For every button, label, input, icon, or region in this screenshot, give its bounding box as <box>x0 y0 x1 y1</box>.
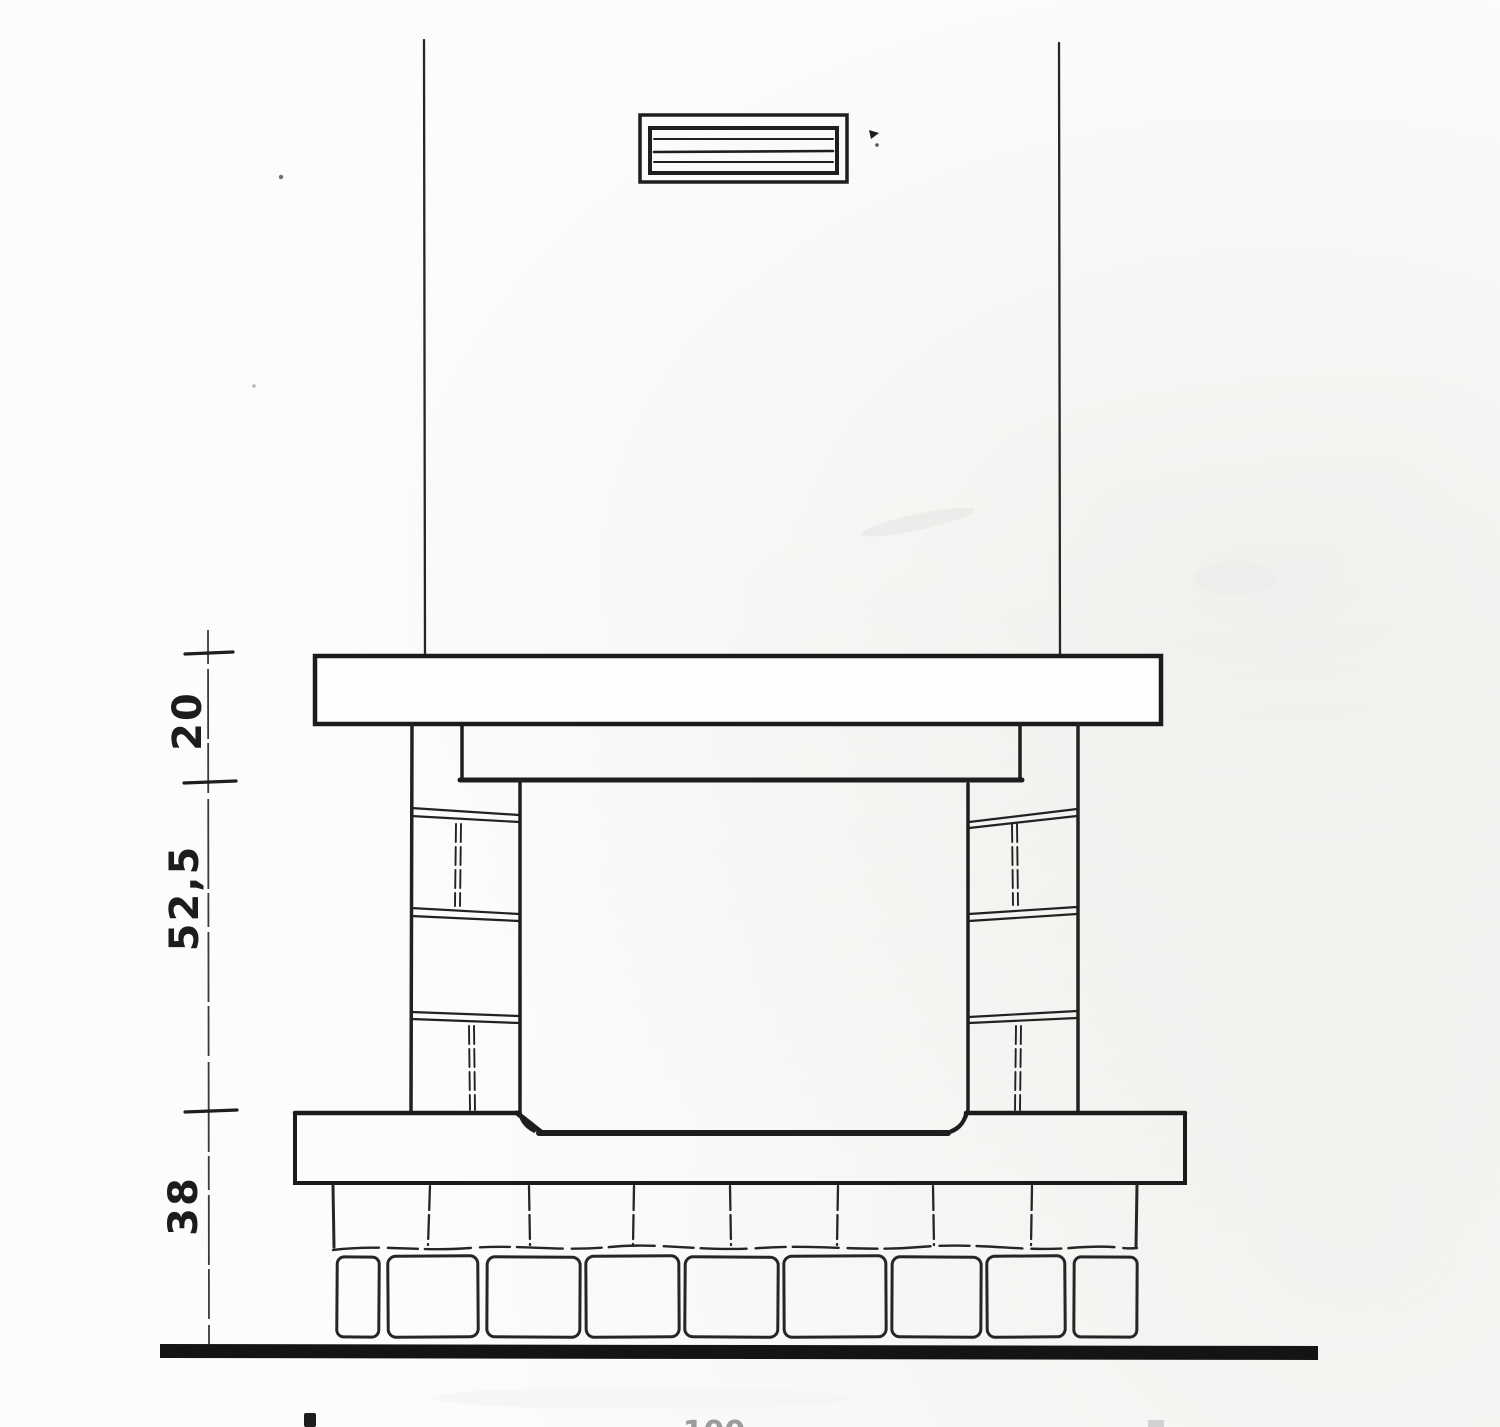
mortar-line <box>969 907 1077 914</box>
base-right-edge <box>1136 1185 1137 1247</box>
brick-joint <box>837 1186 838 1245</box>
brick-joint <box>730 1186 731 1245</box>
mortar-line <box>969 1011 1077 1017</box>
brick-joint <box>460 824 461 906</box>
brick <box>892 1257 981 1337</box>
ink-fleck <box>869 130 879 139</box>
firebox <box>517 783 968 1133</box>
dimension-tick <box>184 781 236 783</box>
vent-slat-line <box>654 151 833 152</box>
brick-joint <box>1020 1026 1021 1110</box>
mortar-line <box>411 1012 519 1016</box>
mortar-line <box>411 916 519 921</box>
base-upper-joints <box>428 1186 1032 1245</box>
brick-joint <box>933 1186 934 1245</box>
brick-joint <box>1015 1026 1016 1110</box>
dimension-line-group: 20 52,5 38 <box>161 630 237 1344</box>
right-column-mortar-joints <box>969 809 1077 1023</box>
mortar-line <box>969 816 1077 828</box>
ink-speck <box>875 143 879 147</box>
mortar-line <box>411 808 519 815</box>
chimney-left-line <box>424 40 425 655</box>
brick-joint <box>1017 824 1018 905</box>
brick <box>388 1256 479 1338</box>
mortar-line <box>969 809 1077 822</box>
base-lower-course <box>337 1256 1137 1338</box>
smudge <box>860 502 977 542</box>
paper-smudges <box>252 175 1460 1409</box>
left-column-head-joints <box>455 824 475 1110</box>
ink-fleck-near-vent <box>869 130 879 147</box>
dimension-label-38: 38 <box>161 1176 207 1236</box>
left-column-outer-edge <box>411 724 412 1112</box>
brick <box>987 1256 1066 1338</box>
lintel <box>460 724 1022 780</box>
brick-joint <box>428 1186 430 1245</box>
ground-line <box>160 1344 1318 1360</box>
mortar-line <box>969 1018 1077 1023</box>
bottom-cropped-labels: 100 <box>304 1413 1164 1427</box>
mantel-shelf <box>315 656 1161 724</box>
fireplace-elevation-drawing: 20 52,5 38 100 <box>0 0 1500 1427</box>
chimney-lines <box>424 40 1060 655</box>
dimension-tick <box>185 1110 237 1112</box>
cropped-mark-left <box>304 1413 316 1427</box>
brick-joint <box>1031 1186 1032 1245</box>
mortar-bed-line <box>333 1246 1137 1250</box>
ink-speck <box>252 384 256 388</box>
firebox-right-wall <box>951 784 968 1131</box>
mortar-line <box>969 914 1077 921</box>
brick <box>685 1257 779 1338</box>
mortar-line <box>411 1019 519 1023</box>
right-column-head-joints <box>1012 824 1021 1110</box>
cropped-mark-right <box>1148 1420 1164 1427</box>
ink-speck <box>279 175 283 179</box>
scanned-drawing-page: 20 52,5 38 100 <box>0 0 1500 1427</box>
base-left-edge <box>333 1185 334 1247</box>
mortar-line <box>411 816 519 822</box>
smudge <box>1193 561 1277 595</box>
cropped-label-100: 100 <box>683 1415 746 1427</box>
brick <box>586 1256 679 1337</box>
brick-joint <box>469 1026 470 1110</box>
dimension-label-52-5: 52,5 <box>162 845 208 952</box>
hearth-outline <box>295 1113 1185 1183</box>
brick-joint <box>474 1026 475 1110</box>
mortar-line <box>411 908 519 914</box>
brick-joint <box>1012 824 1013 905</box>
base-upper-course <box>333 1185 1137 1250</box>
smudge <box>430 1387 850 1409</box>
chimney-right-line <box>1059 43 1060 655</box>
brick-joint <box>633 1186 634 1245</box>
brick-joint <box>455 824 456 906</box>
firebox-left-wall <box>520 783 534 1131</box>
brick <box>784 1256 886 1338</box>
brick-joint <box>529 1186 530 1245</box>
brick <box>1074 1257 1137 1337</box>
brick <box>337 1257 380 1337</box>
hearth-slab <box>295 1113 1185 1183</box>
vent-grille <box>640 115 847 182</box>
firebox-floor-right-chamfer <box>946 1114 966 1133</box>
dimension-tick <box>185 652 233 654</box>
dimension-label-20: 20 <box>165 691 211 751</box>
smudge <box>1336 1115 1460 1305</box>
left-column-mortar-joints <box>411 808 519 1023</box>
brick <box>487 1257 580 1337</box>
